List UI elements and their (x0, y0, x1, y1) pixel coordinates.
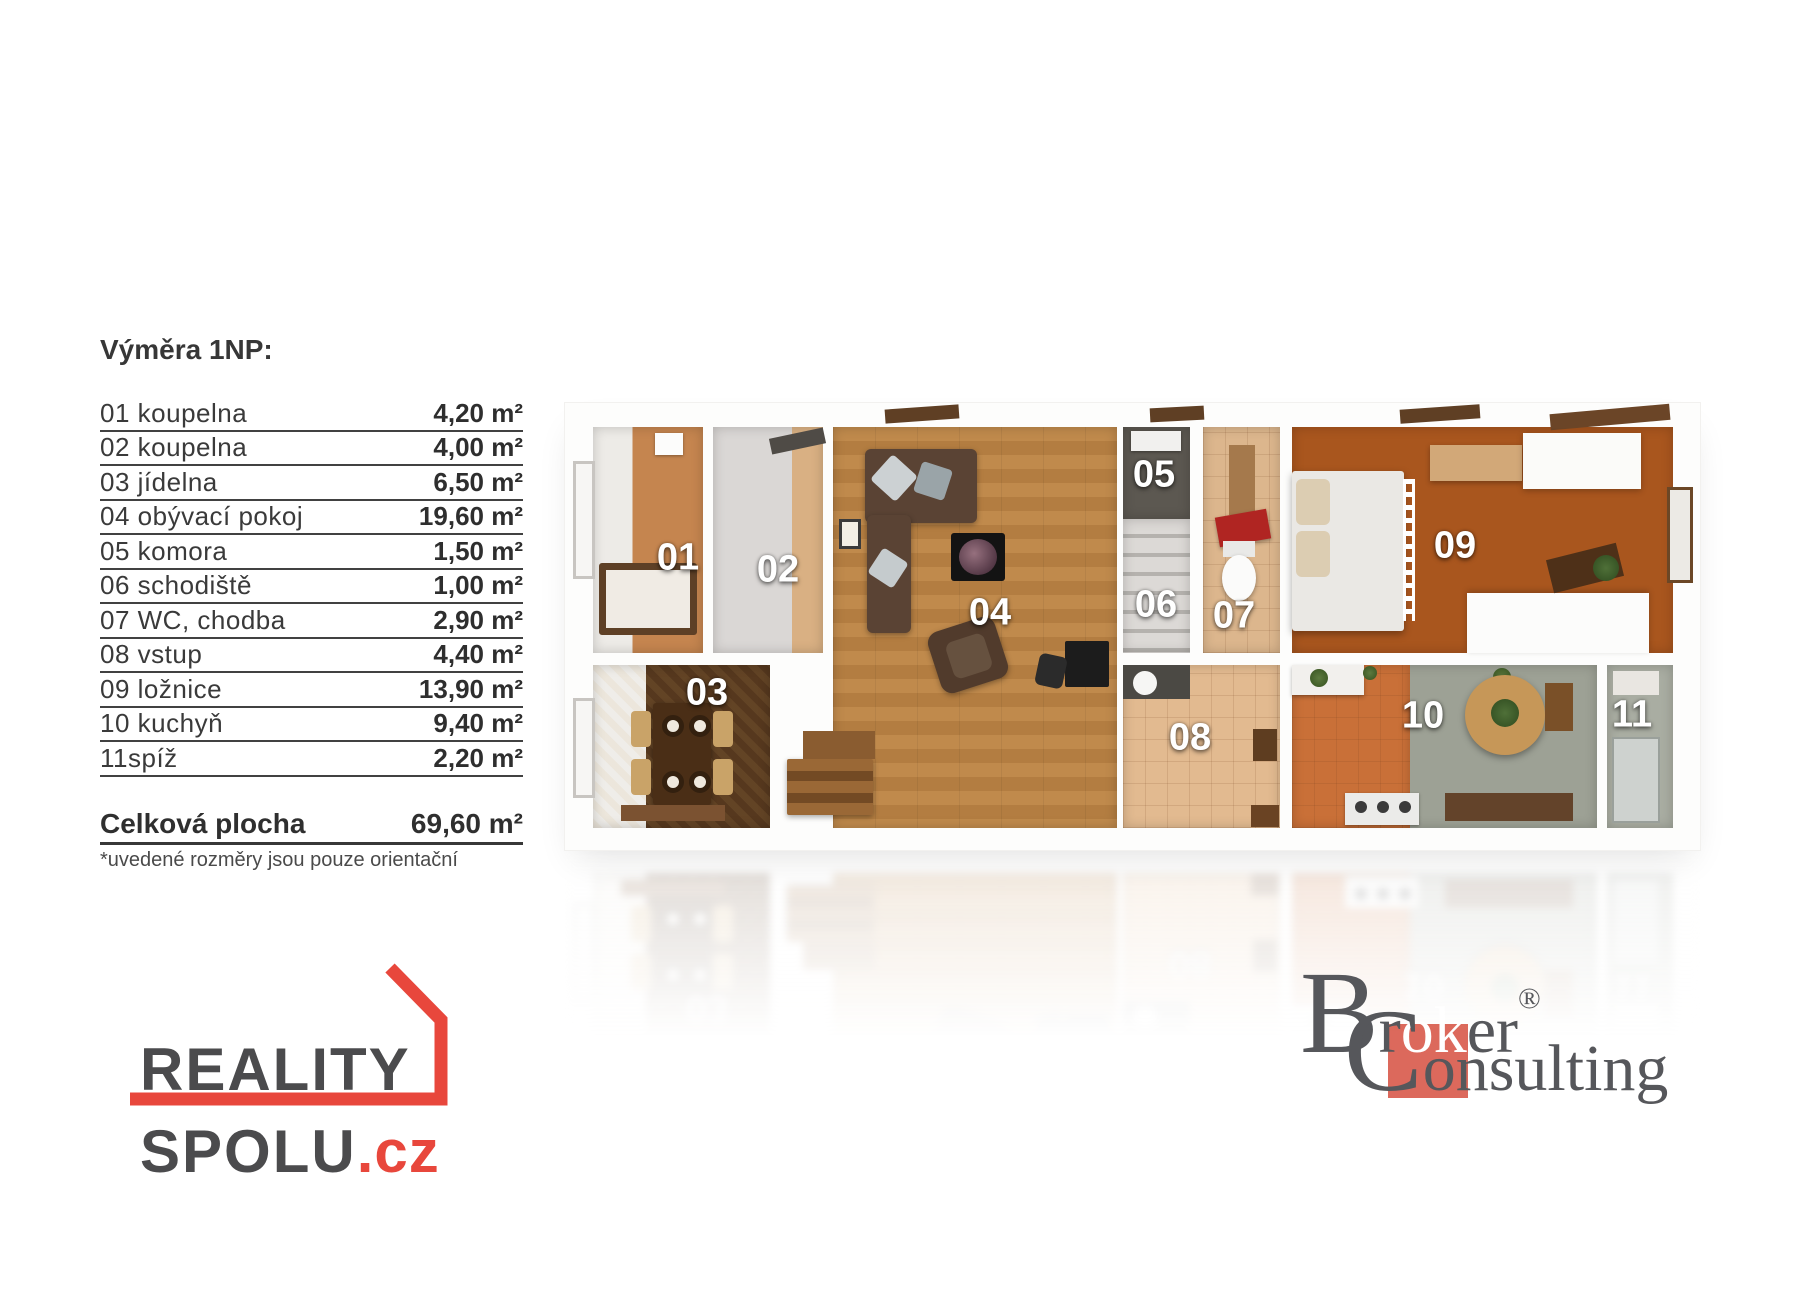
spolu-wordmark: SPOLU.cz (140, 1117, 440, 1186)
desk (1065, 641, 1109, 687)
room-area: 2,90 m² (433, 605, 523, 636)
room-label-08: 08 (1169, 717, 1211, 760)
room-area: 2,20 m² (433, 743, 523, 774)
room-label-06: 06 (1135, 584, 1177, 627)
kitchen-counter (1445, 793, 1573, 821)
chair (713, 711, 733, 747)
consulting-initial: C (1344, 985, 1423, 1116)
table-row: 04 obývací pokoj 19,60 m² (100, 501, 523, 536)
door (1251, 805, 1279, 827)
room-name: 08 vstup (100, 639, 202, 670)
table-row: 09 ložnice 13,90 m² (100, 673, 523, 708)
room-area: 1,00 m² (433, 570, 523, 601)
sideboard (621, 805, 725, 821)
table-row: 08 vstup 4,40 m² (100, 639, 523, 674)
room-name: 02 koupelna (100, 432, 247, 463)
reality-spolu-logo: REALITY SPOLU.cz (128, 962, 473, 1182)
room-area: 19,60 m² (419, 501, 523, 532)
room-label-04: 04 (969, 592, 1011, 635)
table-row: 07 WC, chodba 2,90 m² (100, 604, 523, 639)
spolu-text: SPOLU (140, 1118, 357, 1185)
fridge (1612, 737, 1660, 823)
pillow (1296, 531, 1330, 577)
sink (655, 433, 683, 455)
wall-shelf (1430, 445, 1522, 481)
room-name: 05 komora (100, 536, 227, 567)
plant (1593, 555, 1619, 581)
cz-suffix: .cz (357, 1118, 440, 1185)
room-02-bathroom (713, 427, 823, 653)
room-label-02: 02 (757, 549, 799, 592)
consulting-wordmark: Consulting (1344, 1036, 1668, 1102)
plant (1491, 699, 1519, 727)
skylight-beam (1400, 404, 1481, 424)
plant (1363, 666, 1377, 680)
chair (631, 711, 651, 747)
wardrobe (1523, 433, 1641, 489)
plant (1310, 669, 1328, 687)
room-label-10: 10 (1402, 695, 1444, 738)
picture-frame (839, 519, 861, 549)
bed-footboard (1403, 479, 1415, 621)
plate (689, 715, 711, 737)
room-label-07: 07 (1213, 595, 1255, 638)
measurements-table: 01 koupelna 4,20 m² 02 koupelna 4,00 m² … (100, 397, 523, 777)
plate (662, 771, 684, 793)
kitchen-counter (1292, 665, 1364, 695)
room-name: 03 jídelna (100, 467, 218, 498)
room-area: 1,50 m² (433, 536, 523, 567)
room-label-11: 11 (1612, 694, 1652, 737)
room-label-01: 01 (657, 537, 699, 580)
window (573, 698, 595, 798)
room-area: 4,00 m² (433, 432, 523, 463)
total-row: Celková plocha 69,60 m² (100, 804, 523, 845)
table-row: 05 komora 1,50 m² (100, 535, 523, 570)
sink (1133, 671, 1157, 695)
table-row: 11spíž 2,20 m² (100, 742, 523, 777)
room-area: 9,40 m² (433, 708, 523, 739)
closet (1467, 593, 1649, 653)
table-row: 03 jídelna 6,50 m² (100, 466, 523, 501)
table-row: 10 kuchyň 9,40 m² (100, 708, 523, 743)
room-name: 01 koupelna (100, 398, 247, 429)
room-name: 09 ložnice (100, 674, 222, 705)
room-name: 06 schodiště (100, 570, 252, 601)
total-label: Celková plocha (100, 808, 305, 840)
burner (1399, 801, 1411, 813)
cabinet (1545, 683, 1573, 731)
plate (689, 771, 711, 793)
room-label-05: 05 (1133, 454, 1175, 497)
plate (662, 715, 684, 737)
broker-consulting-logo: Broker® Consulting (1300, 998, 1720, 1168)
window (1667, 487, 1693, 583)
reality-wordmark: REALITY (140, 1035, 411, 1104)
table-row: 02 koupelna 4,00 m² (100, 432, 523, 467)
chair (713, 759, 733, 795)
chair (631, 759, 651, 795)
door (1253, 729, 1277, 761)
window (573, 461, 595, 579)
room-area: 13,90 m² (419, 674, 523, 705)
room-name: 07 WC, chodba (100, 605, 286, 636)
total-area: 69,60 m² (411, 808, 523, 840)
consulting-text: onsulting (1423, 1032, 1669, 1105)
room-name: 11spíž (100, 743, 178, 774)
table-heading: Výměra 1NP: (100, 334, 273, 366)
shelf-unit (1131, 431, 1181, 451)
wooden-steps (803, 731, 875, 759)
pillow (1296, 479, 1330, 525)
skylight-beam (1150, 406, 1205, 423)
floor-plan: 01 02 03 04 05 06 07 08 09 10 11 (565, 403, 1700, 850)
skylight-beam (885, 404, 960, 423)
room-area: 6,50 m² (433, 467, 523, 498)
room-label-03: 03 (686, 672, 728, 715)
table-row: 06 schodiště 1,00 m² (100, 570, 523, 605)
footnote: *uvedené rozměry jsou pouze orientační (100, 849, 458, 872)
room-area: 4,20 m² (433, 398, 523, 429)
room-name: 10 kuchyň (100, 708, 223, 739)
table-row: 01 koupelna 4,20 m² (100, 397, 523, 432)
burner (1377, 801, 1389, 813)
wooden-steps (787, 759, 873, 815)
shelf (1613, 671, 1659, 695)
room-area: 4,40 m² (433, 639, 523, 670)
registered-mark: ® (1518, 982, 1541, 1015)
cabinet (1229, 445, 1255, 515)
burner (1355, 801, 1367, 813)
flower-bouquet (959, 539, 997, 575)
room-label-09: 09 (1434, 525, 1476, 568)
room-name: 04 obývací pokoj (100, 501, 303, 532)
